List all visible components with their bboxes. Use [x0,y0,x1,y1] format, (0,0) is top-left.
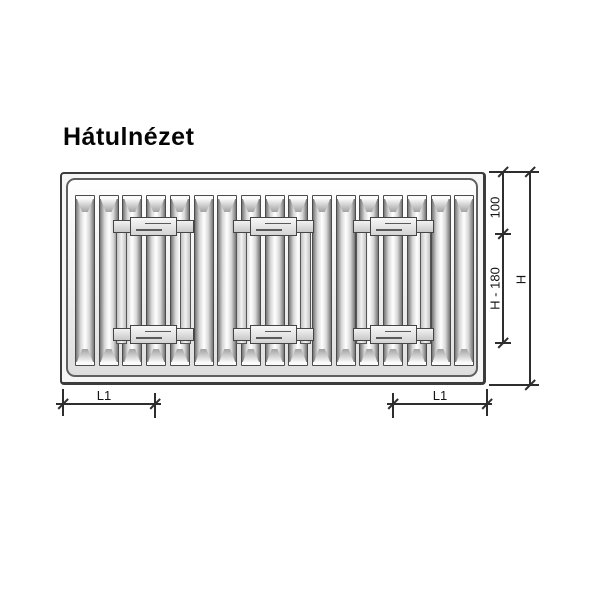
fin-top-cap [123,196,141,199]
fin-bottom-cap [360,362,378,365]
fin-bottom-bevel [290,349,306,362]
fin-bottom-cap [218,362,236,365]
fin-top-cap [360,196,378,199]
fin-bottom-bevel [409,349,425,362]
fin-top-cap [147,196,165,199]
clamp-detail-line [145,331,171,333]
fin-top-cap [455,196,473,199]
bracket-rail [420,220,431,344]
fin-top-bevel [172,199,188,212]
fin-top-cap [242,196,260,199]
fin-top-bevel [433,199,449,212]
clamp-detail-line [136,337,162,339]
dimension-line-l1-right [387,403,492,405]
fin-top-bevel [243,199,259,212]
dim-label-100: 100 [488,178,503,238]
fin-bottom-cap [455,362,473,365]
radiator-fins-layer [62,174,483,382]
fin-bottom-cap [195,362,213,365]
dimension-line-l1-left [56,403,161,405]
clamp-detail-line [376,337,402,339]
clamp-detail-line [256,337,282,339]
dimension-line-total-height [529,171,531,385]
fin-bottom-bevel [172,349,188,362]
fin-bottom-bevel [124,349,140,362]
radiator-fin [75,195,95,366]
fin-bottom-bevel [361,349,377,362]
clamp-detail-line [145,223,171,225]
bracket-clamp-center [250,325,297,344]
bracket-clamp-center [130,217,177,236]
fin-top-cap [432,196,450,199]
bracket-rail [300,220,311,344]
fin-bottom-bevel [196,349,212,362]
clamp-detail-line [376,229,402,231]
page-title: Hátulnézet [63,123,194,152]
fin-top-bevel [148,199,164,212]
bracket-clamp-center [370,325,417,344]
fin-bottom-cap [384,362,402,365]
clamp-detail-line [136,229,162,231]
fin-bottom-cap [313,362,331,365]
fin-top-bevel [385,199,401,212]
fin-bottom-bevel [77,349,93,362]
radiator-rear-view [60,172,486,385]
fin-bottom-cap [432,362,450,365]
fin-top-bevel [409,199,425,212]
fin-bottom-bevel [148,349,164,362]
fin-top-cap [100,196,118,199]
fin-top-cap [337,196,355,199]
fin-top-bevel [456,199,472,212]
clamp-detail-line [385,223,411,225]
bracket-clamp-center [250,217,297,236]
fin-top-cap [195,196,213,199]
fin-top-cap [218,196,236,199]
clamp-detail-line [265,223,291,225]
fin-bottom-bevel [219,349,235,362]
fin-bottom-bevel [338,349,354,362]
fin-top-bevel [196,199,212,212]
fin-top-bevel [267,199,283,212]
clamp-detail-line [256,229,282,231]
fin-bottom-bevel [314,349,330,362]
fin-top-cap [408,196,426,199]
bracket-rail [236,220,247,344]
fin-top-cap [76,196,94,199]
dim-label-l1-right: L1 [420,388,460,403]
fin-bottom-cap [242,362,260,365]
fin-top-bevel [77,199,93,212]
fin-top-bevel [290,199,306,212]
fin-top-bevel [338,199,354,212]
drawing-canvas: Hátulnézet 100 H - 180 H L1 L1 [0,0,600,600]
fin-bottom-bevel [267,349,283,362]
clamp-detail-line [385,331,411,333]
fin-top-cap [266,196,284,199]
fin-top-bevel [219,199,235,212]
dim-label-h: H [514,264,529,296]
fin-top-cap [289,196,307,199]
radiator-fin [454,195,474,366]
fin-top-cap [384,196,402,199]
bracket-rail [116,220,127,344]
fin-top-bevel [124,199,140,212]
fin-bottom-bevel [243,349,259,362]
fin-bottom-cap [100,362,118,365]
fin-top-bevel [101,199,117,212]
bracket-rail [356,220,367,344]
fin-top-cap [313,196,331,199]
fin-bottom-cap [147,362,165,365]
bracket-clamp-center [370,217,417,236]
fin-bottom-cap [266,362,284,365]
dim-label-h-180: H - 180 [488,252,503,326]
fin-bottom-cap [337,362,355,365]
radiator-fin [194,195,214,366]
bracket-clamp-center [130,325,177,344]
fin-bottom-bevel [385,349,401,362]
fin-bottom-cap [408,362,426,365]
fin-bottom-cap [123,362,141,365]
radiator-fin [312,195,332,366]
fin-bottom-bevel [456,349,472,362]
fin-top-bevel [361,199,377,212]
bracket-rail [180,220,191,344]
fin-bottom-cap [171,362,189,365]
clamp-detail-line [265,331,291,333]
fin-top-cap [171,196,189,199]
fin-top-bevel [314,199,330,212]
fin-bottom-bevel [101,349,117,362]
fin-bottom-cap [289,362,307,365]
fin-bottom-cap [76,362,94,365]
dim-label-l1-left: L1 [84,388,124,403]
fin-bottom-bevel [433,349,449,362]
